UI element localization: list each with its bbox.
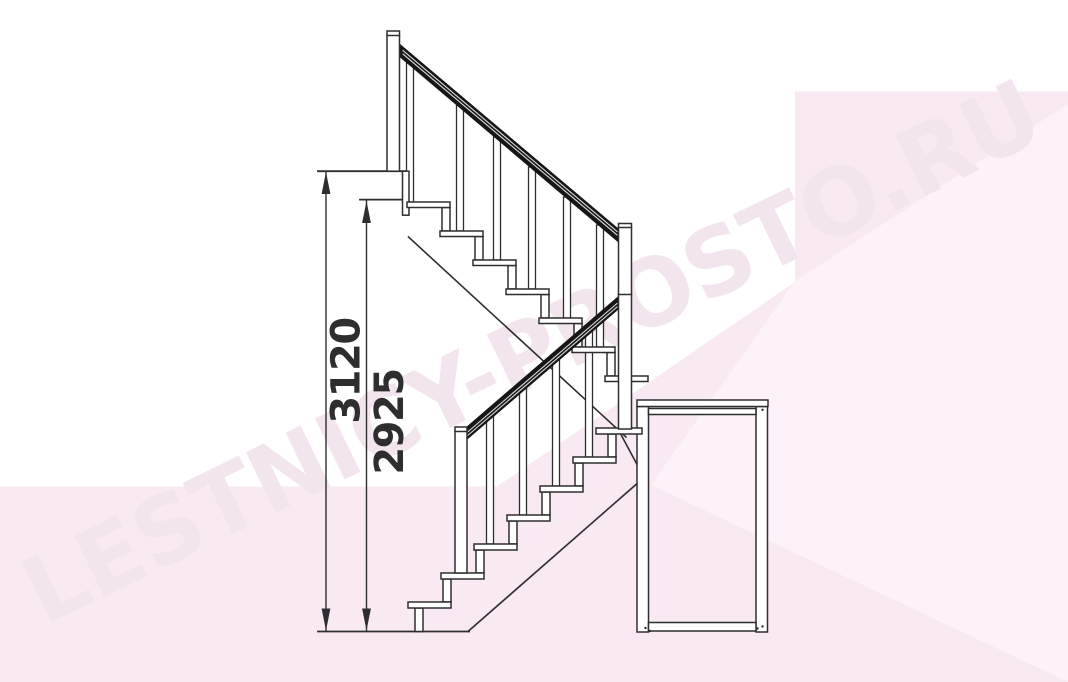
bolt-dot	[761, 625, 763, 627]
tread	[573, 457, 616, 463]
bolt-dot	[756, 627, 758, 629]
frame-left-leg	[637, 407, 649, 633]
baluster	[564, 197, 571, 318]
riser-block	[442, 208, 450, 232]
tread	[507, 515, 550, 521]
riser-block	[608, 434, 616, 457]
riser-block	[508, 266, 516, 290]
riser-block	[509, 521, 517, 544]
baluster	[487, 413, 494, 544]
bolt-dot	[644, 627, 646, 629]
tread	[440, 231, 483, 237]
baluster	[494, 137, 501, 260]
staircase-elevation-canvas: LESTNICY-PROSTO.RU 3120 2925	[0, 0, 1068, 682]
riser-block	[575, 463, 583, 486]
lower-newel-post	[455, 427, 467, 573]
riser-block	[542, 492, 550, 515]
bolt-dot	[649, 630, 651, 632]
riser-block	[607, 353, 615, 377]
tread	[572, 347, 615, 353]
tread	[539, 318, 582, 324]
baluster	[457, 105, 464, 231]
frame-bottom-rail	[649, 623, 757, 632]
riser-block	[476, 550, 484, 573]
riser-block	[541, 295, 549, 319]
baluster	[529, 167, 536, 289]
baluster	[553, 356, 560, 486]
tread	[506, 289, 549, 295]
tread	[441, 573, 484, 579]
bolt-dot	[761, 409, 763, 411]
riser-block	[415, 608, 423, 632]
staircase-drawing-page: LESTNICY-PROSTO.RU 3120 2925	[0, 0, 1068, 682]
tread	[408, 602, 451, 608]
tread	[474, 544, 517, 550]
top-newel-post	[387, 31, 400, 171]
tread	[540, 486, 583, 492]
baluster	[597, 225, 604, 347]
tread	[473, 260, 516, 266]
landing-platform-board	[637, 400, 768, 407]
baluster	[520, 385, 527, 515]
dimension-label-3120: 3120	[324, 318, 370, 423]
tread	[407, 202, 450, 208]
landing-fascia-board	[403, 171, 410, 215]
riser-block	[475, 237, 483, 261]
frame-right-leg	[756, 407, 768, 633]
riser-block	[443, 579, 451, 602]
mid-newel-post	[619, 224, 632, 430]
dimension-label-2925: 2925	[367, 369, 413, 474]
frame-top-rail	[649, 409, 757, 415]
